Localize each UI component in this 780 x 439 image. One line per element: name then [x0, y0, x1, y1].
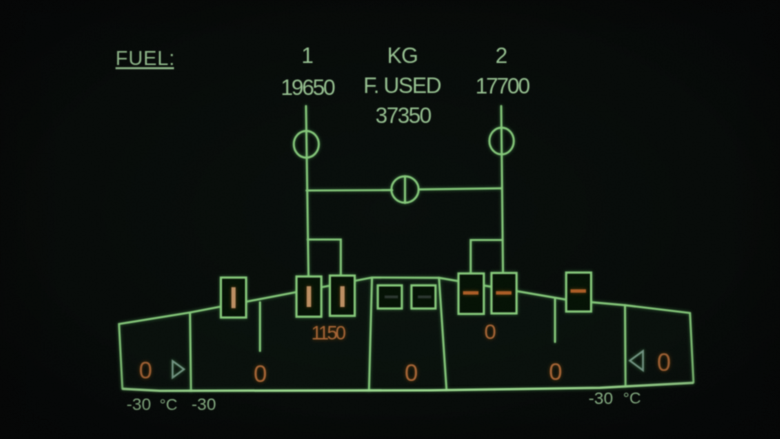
- svg-text:0: 0: [484, 320, 496, 344]
- svg-text:KG: KG: [387, 43, 418, 68]
- svg-text:37350: 37350: [375, 103, 431, 128]
- svg-text:0: 0: [254, 361, 267, 388]
- svg-text:1: 1: [301, 43, 313, 68]
- svg-text:2: 2: [495, 43, 507, 68]
- svg-text:-30: -30: [127, 395, 152, 414]
- svg-text:°C: °C: [623, 391, 641, 408]
- svg-text:FUEL:: FUEL:: [116, 48, 176, 70]
- svg-text:F. USED: F. USED: [363, 73, 440, 98]
- svg-text:0: 0: [405, 360, 418, 387]
- svg-text:0: 0: [549, 359, 562, 386]
- svg-text:0: 0: [139, 358, 152, 385]
- svg-text:°C: °C: [160, 397, 178, 414]
- svg-text:17700: 17700: [475, 73, 530, 98]
- svg-text:-30: -30: [192, 395, 217, 414]
- svg-text:19650: 19650: [281, 75, 336, 100]
- svg-text:-30: -30: [589, 389, 614, 408]
- svg-text:0: 0: [657, 349, 671, 377]
- svg-text:1150: 1150: [311, 324, 345, 345]
